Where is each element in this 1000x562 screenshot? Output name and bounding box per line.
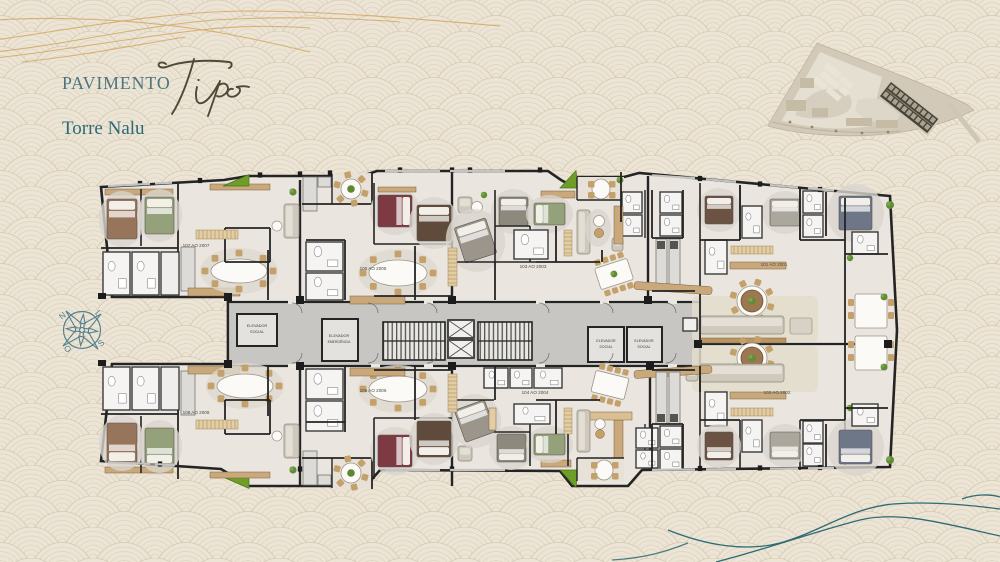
svg-text:ELEVADOR: ELEVADOR [247,324,268,328]
svg-text:SOCIAL: SOCIAL [599,345,612,349]
svg-text:104 AO 2004: 104 AO 2004 [522,390,549,395]
svg-text:103 AO 2003: 103 AO 2003 [520,264,547,269]
svg-text:PAVIMENTO: PAVIMENTO [62,73,171,93]
svg-text:101 AO 2001: 101 AO 2001 [761,262,788,267]
svg-text:107 AO 2007: 107 AO 2007 [183,243,210,248]
svg-text:SOCIAL: SOCIAL [250,330,264,334]
svg-text:ELEVADOR: ELEVADOR [596,339,616,343]
svg-text:105 AO 2005: 105 AO 2005 [360,266,387,271]
svg-text:Torre Nalu: Torre Nalu [62,118,145,139]
svg-text:ELEVADOR: ELEVADOR [329,334,350,338]
svg-text:ELEVADOR: ELEVADOR [634,339,654,343]
svg-text:108 AO 2008: 108 AO 2008 [183,410,210,415]
svg-text:SOCIAL: SOCIAL [637,345,650,349]
svg-text:106 AO 2006: 106 AO 2006 [360,388,387,393]
svg-text:102 AO 2002: 102 AO 2002 [764,390,791,395]
svg-text:EMERGÊNCIA: EMERGÊNCIA [328,339,352,344]
